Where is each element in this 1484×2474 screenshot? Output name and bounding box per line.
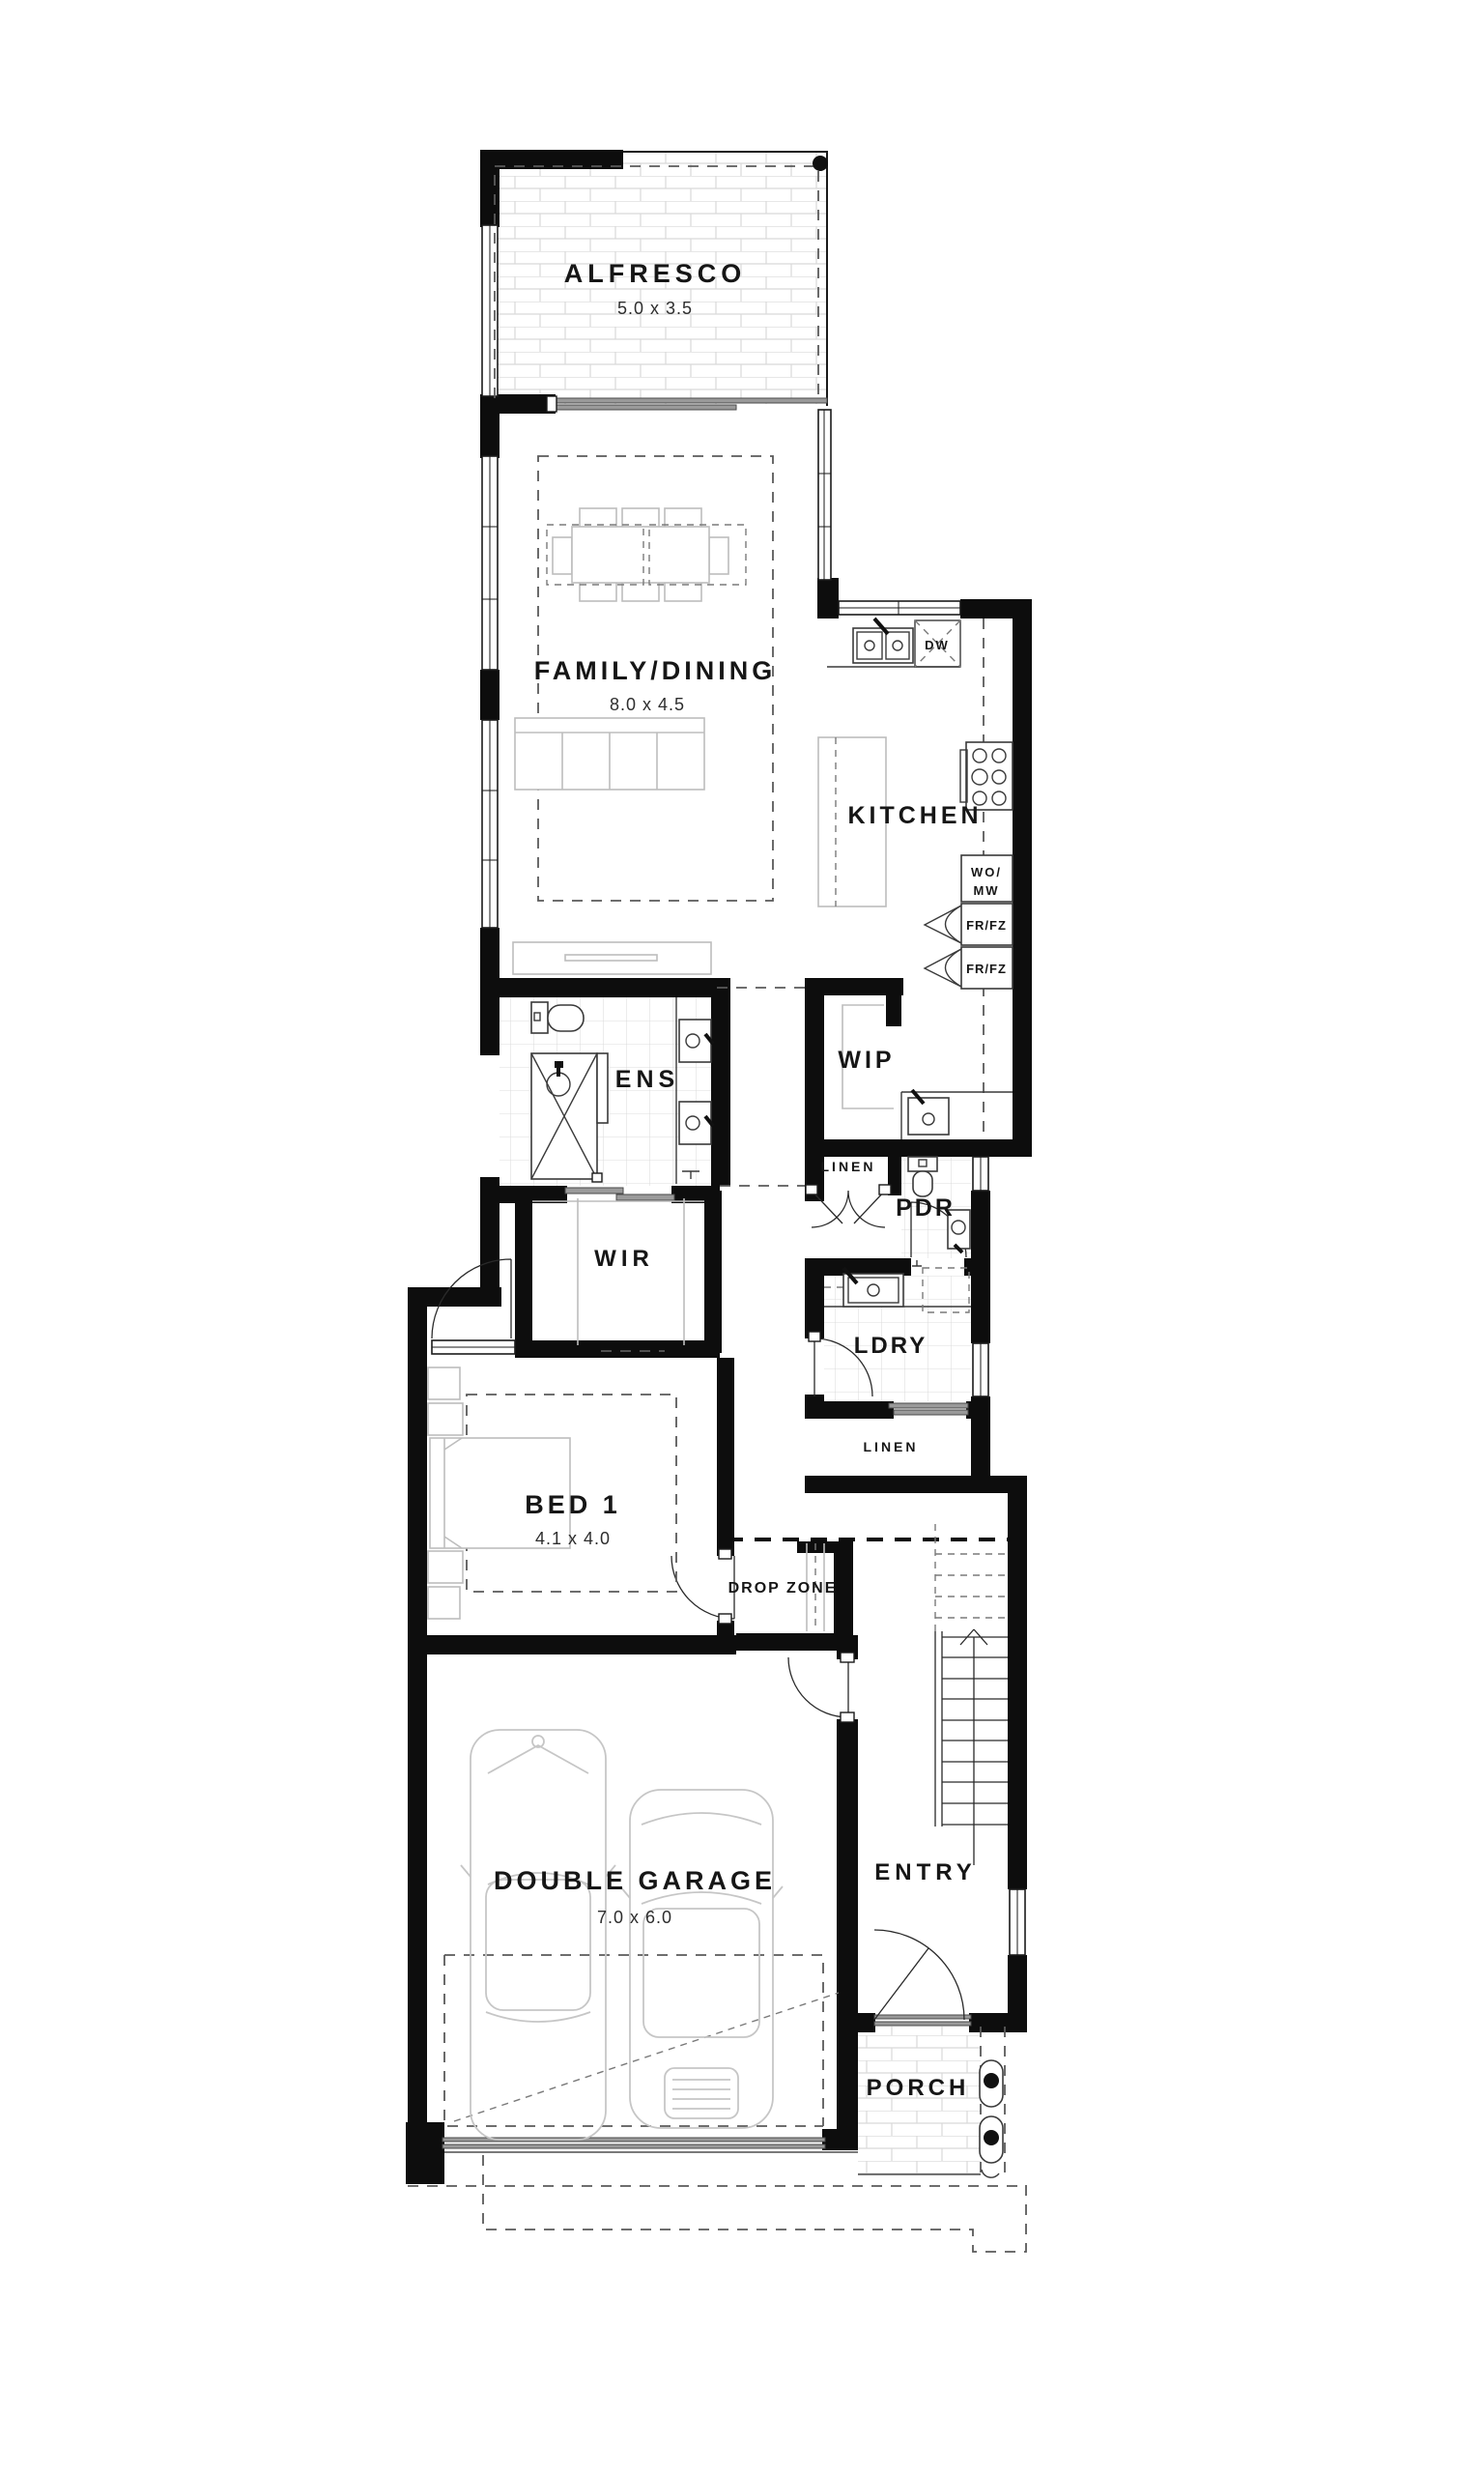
drop-zone-label: DROP ZONE xyxy=(728,1580,838,1597)
ens-sliding-door xyxy=(565,1188,674,1200)
porch-columns xyxy=(980,2060,1003,2177)
alfresco-post xyxy=(813,156,828,171)
family-right-glazing xyxy=(818,410,831,580)
front-door xyxy=(874,1930,971,2026)
oven-label-line1: WO/ xyxy=(971,865,1002,879)
sofa xyxy=(515,718,704,790)
bed1-label: BED 1 xyxy=(525,1490,621,1519)
entry-label: ENTRY xyxy=(874,1859,976,1885)
floor-plan-page: ALFRESCO 5.0 x 3.5 FAMILY/DINING 8.0 x 4… xyxy=(0,0,1484,2474)
stair-up-arrow xyxy=(960,1629,987,1865)
fridge1-label: FR/FZ xyxy=(966,918,1007,933)
ens-label: ENS xyxy=(615,1066,679,1093)
kitchen-window xyxy=(839,601,960,615)
garage-dims: 7.0 x 6.0 xyxy=(597,1908,672,1927)
ldry-linen-sliding-door xyxy=(889,1403,968,1415)
dining-table xyxy=(547,508,746,601)
garage-diagonal-dashed xyxy=(454,1993,839,2121)
bed1-window xyxy=(432,1340,515,1354)
wir-shelving xyxy=(532,1198,704,1345)
garage-door-jamb-top xyxy=(841,1653,854,1662)
garage-recess-dashed-2 xyxy=(444,1955,823,2126)
ldry-door-jamb xyxy=(809,1332,820,1341)
bed1-door-jamb-top xyxy=(719,1549,731,1559)
family-dining-label: FAMILY/DINING xyxy=(534,656,777,685)
bed1-dims: 4.1 x 4.0 xyxy=(535,1529,611,1548)
ldry-label: LDRY xyxy=(854,1333,927,1359)
garage-entry-door xyxy=(788,1657,848,1717)
family-left-window-lower xyxy=(482,720,498,928)
garage-label: DOUBLE GARAGE xyxy=(494,1866,776,1895)
pdr-label: PDR xyxy=(896,1194,956,1222)
car-sedan xyxy=(461,1730,615,2140)
family-left-window-upper xyxy=(482,456,498,670)
pdr-window xyxy=(973,1157,988,1191)
wip-sink xyxy=(901,1090,1013,1139)
ens-toilet xyxy=(531,1002,584,1033)
fridge2-label: FR/FZ xyxy=(966,962,1007,976)
floor-plan-svg: ALFRESCO 5.0 x 3.5 FAMILY/DINING 8.0 x 4… xyxy=(0,0,1484,2474)
entry-window xyxy=(1010,1889,1025,1955)
family-dining-dims: 8.0 x 4.5 xyxy=(610,695,685,714)
oven-label-line2: MW xyxy=(973,883,999,898)
tv-unit xyxy=(513,942,711,974)
linen2-label: LINEN xyxy=(864,1439,919,1454)
wip-label: WIP xyxy=(838,1047,895,1074)
kitchen-label: KITCHEN xyxy=(847,802,982,829)
wir-label: WIR xyxy=(594,1246,654,1272)
stairs xyxy=(935,1554,1008,1865)
ldry-window xyxy=(973,1343,988,1396)
cooktop xyxy=(960,742,1013,810)
alfresco-dims: 5.0 x 3.5 xyxy=(617,299,693,318)
car-suv xyxy=(620,1790,783,2128)
alfresco-label: ALFRESCO xyxy=(564,259,747,288)
bed1-door-jamb-bottom xyxy=(719,1614,731,1624)
bed1-door xyxy=(671,1556,734,1619)
ens-shower xyxy=(531,1053,608,1182)
linen1-label: LINEN xyxy=(821,1159,876,1174)
garage-recess-dashed xyxy=(444,1955,823,2126)
garage-door-jamb-bottom xyxy=(841,1712,854,1722)
porch-label: PORCH xyxy=(867,2075,970,2101)
dishwasher-label: DW xyxy=(925,638,950,652)
